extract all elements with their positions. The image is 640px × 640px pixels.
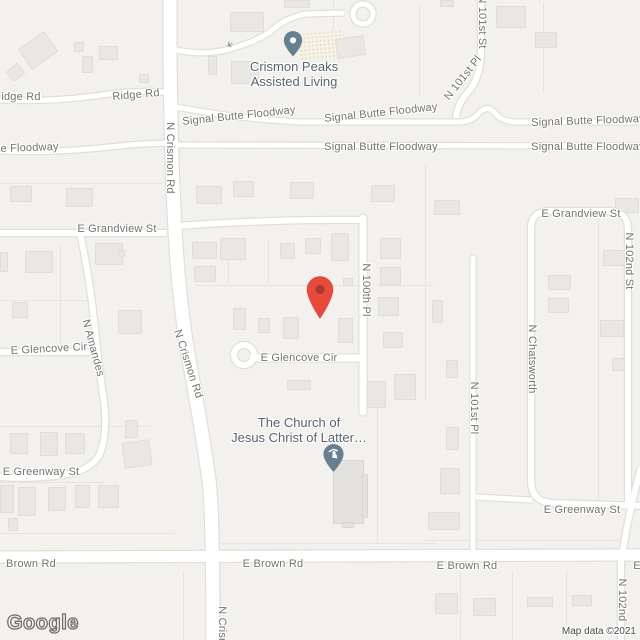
marker-inner-dot (315, 285, 324, 294)
map-attribution: Map data ©2021 (562, 626, 636, 637)
selected-location-marker[interactable] (306, 276, 334, 319)
pin-hole (290, 37, 296, 43)
church-label[interactable]: The Church of Jesus Christ of Latter… (231, 415, 367, 445)
map-canvas[interactable]: idge RdRidge RdSignal Butte FloodwaySign… (0, 0, 640, 640)
google-logo[interactable]: Google (7, 612, 79, 635)
crismon-peaks-label[interactable]: Crismon Peaks Assisted Living (250, 59, 338, 89)
crismon-peaks-poi-pin[interactable] (282, 30, 304, 58)
church-poi-pin[interactable] (322, 443, 345, 473)
